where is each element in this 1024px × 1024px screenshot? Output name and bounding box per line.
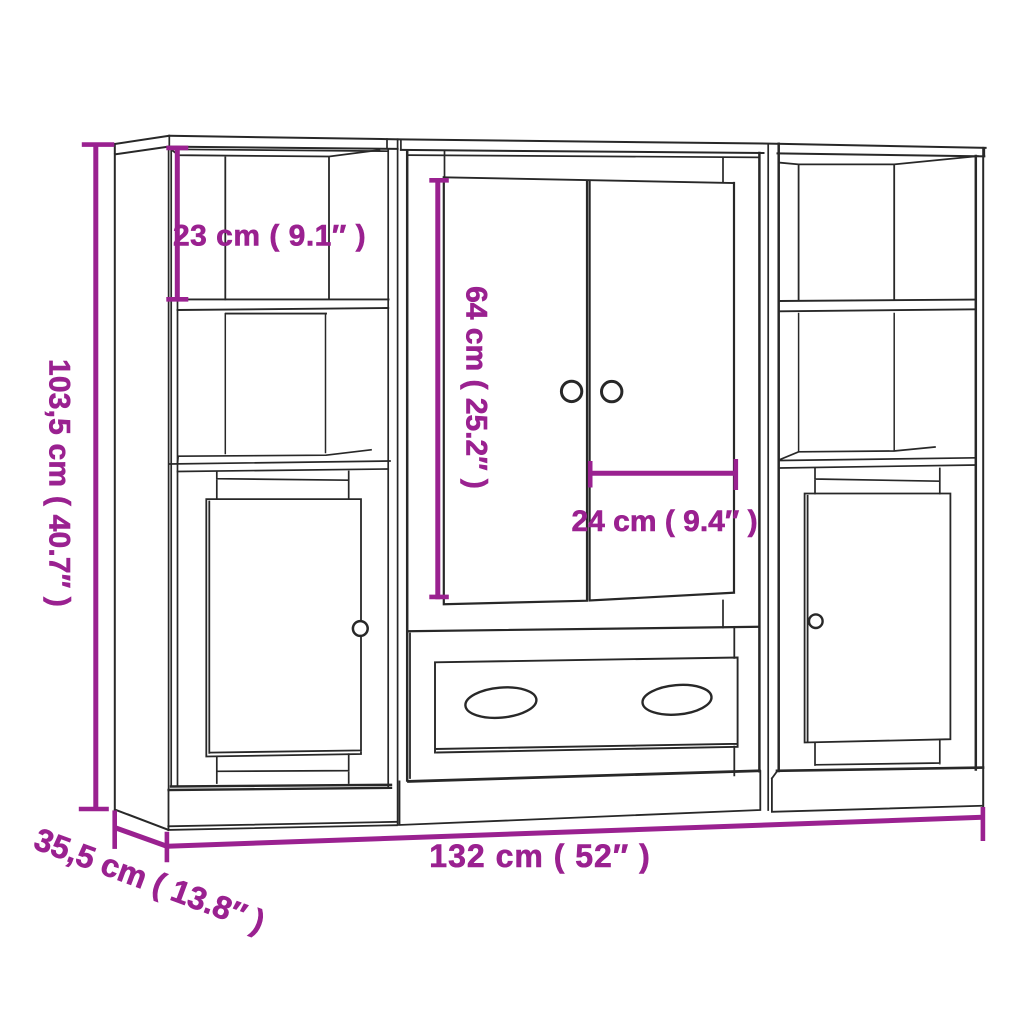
svg-text:23 cm ( 9.1″ ): 23 cm ( 9.1″ ) bbox=[173, 220, 366, 253]
svg-text:24 cm ( 9.4″ ): 24 cm ( 9.4″ ) bbox=[571, 505, 757, 538]
svg-text:132 cm ( 52″ ): 132 cm ( 52″ ) bbox=[429, 838, 650, 874]
svg-text:103,5 cm ( 40.7″ ): 103,5 cm ( 40.7″ ) bbox=[43, 359, 76, 607]
svg-text:64 cm ( 25.2″ ): 64 cm ( 25.2″ ) bbox=[460, 286, 493, 489]
